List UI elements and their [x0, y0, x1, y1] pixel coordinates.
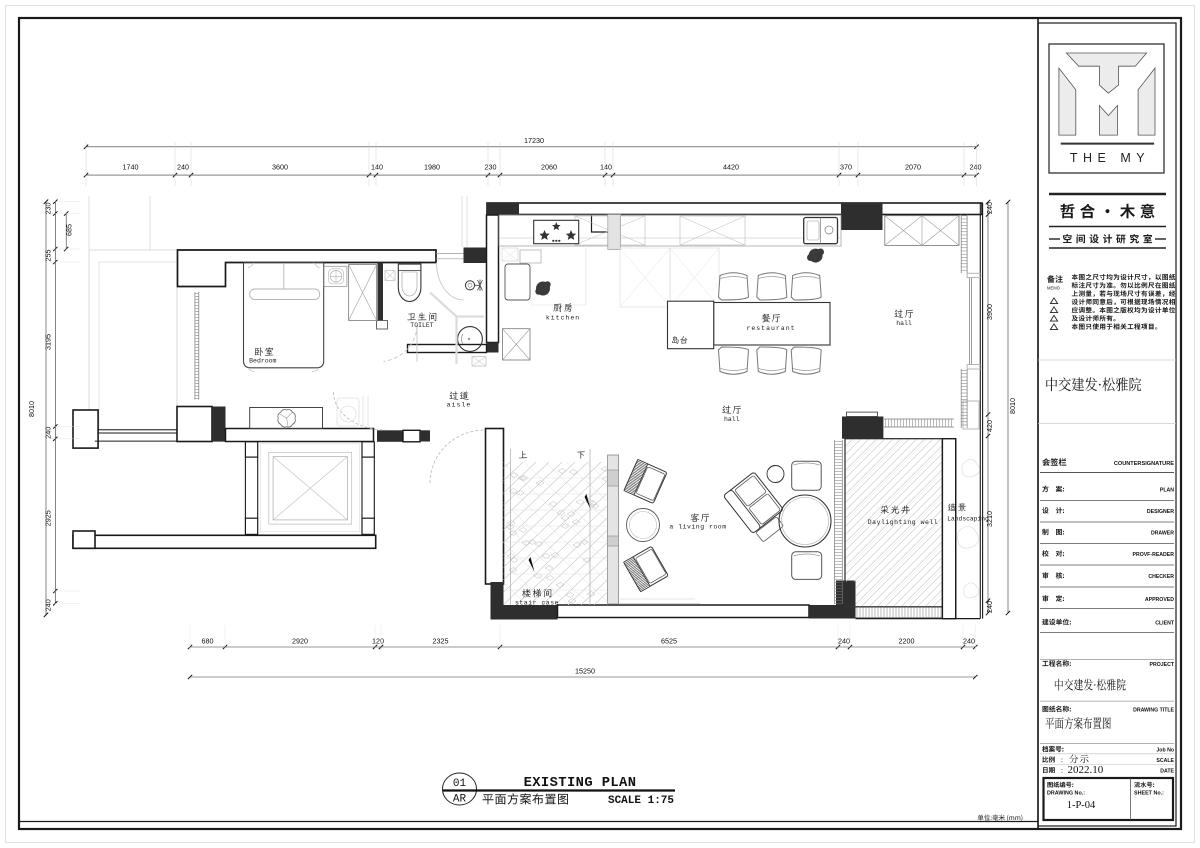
svg-text:3210: 3210	[985, 511, 994, 527]
svg-text:255: 255	[44, 250, 53, 262]
svg-text:CHECKER: CHECKER	[1148, 574, 1174, 580]
svg-text:DRAWING TITLE: DRAWING TITLE	[1133, 708, 1174, 714]
svg-text:stair case: stair case	[515, 600, 559, 607]
svg-text:Landscaping: Landscaping	[947, 516, 989, 523]
svg-text:230: 230	[485, 163, 497, 172]
svg-text:140: 140	[371, 163, 383, 172]
svg-text:230: 230	[44, 203, 53, 215]
svg-text:240: 240	[177, 163, 189, 172]
svg-text:3195: 3195	[44, 334, 53, 350]
svg-text:DRAWER: DRAWER	[1151, 531, 1174, 537]
svg-text:Job No: Job No	[1156, 748, 1174, 754]
svg-text:a living room: a living room	[669, 524, 726, 531]
svg-text:240: 240	[44, 427, 53, 439]
svg-text:240: 240	[838, 637, 850, 646]
svg-text:SHEET No.:: SHEET No.:	[1134, 791, 1164, 797]
svg-text:PROVF-READER: PROVF-READER	[1132, 552, 1174, 558]
svg-text:240: 240	[970, 163, 982, 172]
svg-text:2920: 2920	[292, 637, 308, 646]
svg-text:01: 01	[453, 778, 467, 790]
svg-text:PROJECT: PROJECT	[1149, 662, 1174, 668]
svg-text:DRAWING No.:: DRAWING No.:	[1047, 791, 1085, 797]
svg-text:hall: hall	[896, 320, 912, 327]
svg-text:TOILET: TOILET	[410, 322, 434, 329]
svg-text:240: 240	[985, 202, 994, 214]
svg-text:2070: 2070	[905, 163, 921, 172]
svg-text:3900: 3900	[985, 304, 994, 320]
svg-text:EXISTING PLAN: EXISTING PLAN	[524, 776, 637, 791]
svg-text:2925: 2925	[44, 510, 53, 526]
svg-text:Bedroom: Bedroom	[249, 357, 276, 364]
svg-text:17230: 17230	[524, 136, 544, 145]
svg-text:1740: 1740	[123, 163, 139, 172]
svg-text:2200: 2200	[899, 637, 915, 646]
svg-text:SCALE: SCALE	[1156, 758, 1174, 764]
svg-text:hall: hall	[724, 416, 740, 423]
svg-text:2325: 2325	[433, 637, 449, 646]
svg-text:120: 120	[372, 637, 384, 646]
svg-text:680: 680	[202, 637, 214, 646]
svg-text:DESIGNER: DESIGNER	[1147, 509, 1174, 515]
svg-text:aisle: aisle	[447, 402, 472, 409]
svg-text:COUNTERSIGNATURE: COUNTERSIGNATURE	[1114, 461, 1174, 467]
svg-text:240: 240	[985, 601, 994, 613]
svg-text:8010: 8010	[1008, 398, 1017, 414]
svg-text:4420: 4420	[723, 163, 739, 172]
svg-text:2022.10: 2022.10	[1068, 764, 1104, 776]
svg-text:685: 685	[65, 224, 74, 236]
svg-text:240: 240	[44, 599, 53, 611]
svg-text:APPROVED: APPROVED	[1145, 597, 1174, 603]
svg-text:kitchen: kitchen	[546, 315, 580, 322]
svg-text:restaurant: restaurant	[746, 325, 795, 332]
svg-text:140: 140	[600, 163, 612, 172]
svg-text:PLAN: PLAN	[1160, 488, 1174, 494]
svg-text:2060: 2060	[541, 163, 557, 172]
svg-text:MEMO: MEMO	[1047, 286, 1061, 291]
svg-text:DATE: DATE	[1160, 769, 1174, 775]
svg-text:370: 370	[840, 163, 852, 172]
svg-text:15250: 15250	[575, 667, 595, 676]
svg-text:3600: 3600	[272, 163, 288, 172]
svg-text:1980: 1980	[424, 163, 440, 172]
svg-text:CLIENT: CLIENT	[1155, 621, 1175, 627]
svg-text:420: 420	[985, 420, 994, 432]
svg-text:240: 240	[963, 637, 975, 646]
svg-text:SCALE 1:75: SCALE 1:75	[608, 795, 674, 807]
svg-text:1-P-04: 1-P-04	[1067, 800, 1096, 811]
svg-text:6525: 6525	[661, 637, 677, 646]
svg-text:AR: AR	[453, 794, 467, 806]
svg-text:THE MY: THE MY	[1070, 151, 1150, 165]
svg-text:Daylighting well: Daylighting well	[868, 519, 938, 526]
svg-text:8010: 8010	[27, 401, 36, 417]
